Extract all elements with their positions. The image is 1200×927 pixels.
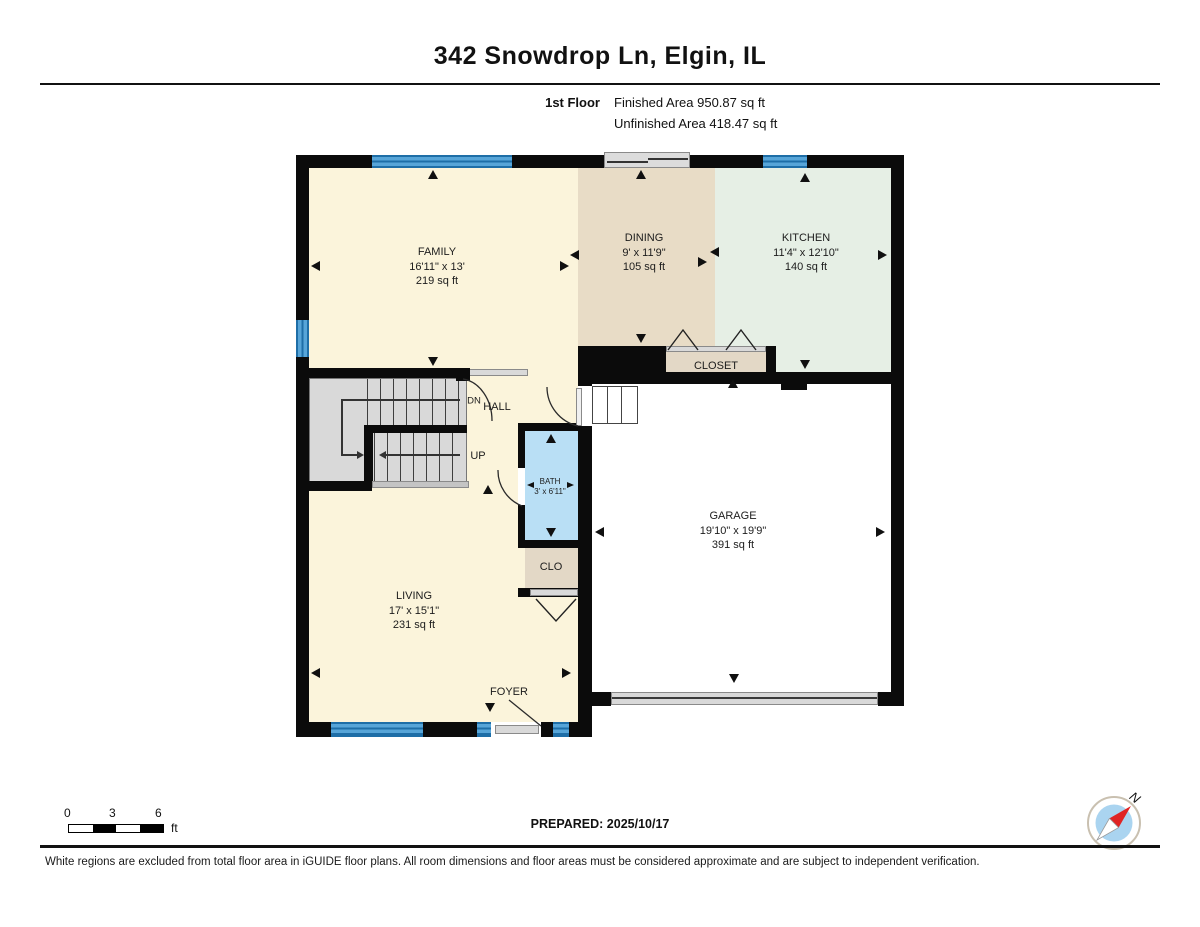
window-living-bottom-small-1	[477, 722, 491, 737]
room-name: KITCHEN	[773, 231, 839, 246]
window-kitchen-top	[763, 155, 807, 168]
wall-garage-bottom-left-cap	[578, 692, 611, 706]
stairs-up-label: UP	[470, 450, 485, 462]
dimension-arrow-down	[485, 703, 495, 712]
stairs-down-label: DN	[467, 396, 481, 407]
room-label-clo: CLO	[540, 561, 563, 573]
stair-path-line	[386, 454, 460, 456]
garage-entry-door-arc	[546, 384, 580, 428]
dimension-arrow-left	[527, 482, 534, 488]
garage-step-line	[607, 387, 608, 423]
room-dimensions: 19'10" x 19'9"	[700, 524, 766, 539]
room-dimensions: 3' x 6'11"	[534, 487, 566, 497]
wall-garage-top	[578, 372, 904, 384]
finished-area-text: Finished Area 950.87 sq ft	[614, 95, 765, 110]
room-area: 105 sq ft	[622, 260, 665, 275]
title-divider	[40, 83, 1160, 85]
floor-label: 1st Floor	[480, 95, 600, 110]
dimension-arrow-left	[710, 247, 719, 257]
sliding-door-dining	[604, 152, 690, 168]
dimension-arrow-right	[698, 257, 707, 267]
dimension-arrow-right	[878, 250, 887, 260]
dimension-arrow-down	[729, 674, 739, 683]
prepared-date: PREPARED: 2025/10/17	[0, 817, 1200, 831]
wall-outer-left	[296, 155, 309, 737]
dimension-arrow-down	[800, 360, 810, 369]
dimension-arrow-up	[483, 485, 493, 494]
room-label-living: LIVING 17' x 15'1" 231 sq ft	[389, 589, 439, 633]
unfinished-area-text: Unfinished Area 418.47 sq ft	[614, 116, 777, 131]
dimension-arrow-up	[728, 379, 738, 388]
stair-path-line	[341, 399, 343, 455]
room-dimensions: 17' x 15'1"	[389, 604, 439, 619]
window-living-bottom-large	[331, 722, 423, 737]
clo-bifold-door	[534, 597, 578, 623]
stair-divider-wall	[364, 425, 467, 433]
stair-path-arrow-right	[357, 451, 364, 459]
window-family-left	[296, 320, 309, 357]
window-family-top	[372, 155, 512, 168]
wall-outer-right	[891, 155, 904, 706]
dimension-arrow-down	[546, 528, 556, 537]
hall-threshold	[467, 369, 528, 376]
dimension-arrow-up	[636, 170, 646, 179]
room-area: 391 sq ft	[700, 538, 766, 553]
room-label-family: FAMILY 16'11" x 13' 219 sq ft	[409, 245, 465, 289]
footer-divider	[40, 845, 1160, 848]
dimension-arrow-right	[560, 261, 569, 271]
dimension-arrow-up	[800, 173, 810, 182]
page-title: 342 Snowdrop Ln, Elgin, IL	[0, 42, 1200, 71]
room-label-hall: HALL	[483, 401, 511, 413]
room-dimensions: 9' x 11'9"	[622, 246, 665, 261]
room-label-foyer: FOYER	[490, 686, 528, 698]
stair-threshold	[372, 481, 469, 488]
sliding-door-panel-line	[648, 158, 688, 160]
room-label-dining: DINING 9' x 11'9" 105 sq ft	[622, 231, 665, 275]
dimension-arrow-up	[428, 170, 438, 179]
stair-path-line	[341, 454, 357, 456]
sliding-door-panel-line	[607, 161, 648, 163]
room-name: GARAGE	[700, 509, 766, 524]
room-area: 140 sq ft	[773, 260, 839, 275]
compass-icon: N	[1084, 786, 1150, 854]
stair-treads-down	[367, 379, 461, 425]
stair-side-wall	[364, 425, 373, 481]
dimension-arrow-down	[636, 334, 646, 343]
room-dimensions: 16'11" x 13'	[409, 260, 465, 275]
wall-bath-clo-divider	[518, 540, 592, 548]
wall-living-garage-upper	[578, 348, 592, 386]
room-label-bath: BATH 3' x 6'11"	[534, 477, 566, 497]
garage-step-line	[621, 387, 622, 423]
wall-living-garage-lower	[578, 426, 592, 722]
room-area: 231 sq ft	[389, 618, 439, 633]
room-name: DINING	[622, 231, 665, 246]
garage-door	[611, 692, 878, 705]
room-label-kitchen: KITCHEN 11'4" x 12'10" 140 sq ft	[773, 231, 839, 275]
room-name: FAMILY	[409, 245, 465, 260]
dimension-arrow-right	[567, 482, 574, 488]
dimension-arrow-down	[428, 357, 438, 366]
bath-door-arc	[496, 466, 526, 510]
dimension-arrow-left	[570, 250, 579, 260]
wall-bath-left-upper	[518, 423, 525, 468]
wall-garage-bottom-right-cap	[878, 692, 904, 706]
wall-family-bottom	[296, 368, 467, 378]
dimension-arrow-up	[546, 434, 556, 443]
room-label-garage: GARAGE 19'10" x 19'9" 391 sq ft	[700, 509, 766, 553]
room-name: BATH	[534, 477, 566, 487]
wall-kitchen-stub	[781, 372, 807, 390]
stair-path-line	[341, 399, 460, 401]
room-name: LIVING	[389, 589, 439, 604]
stair-treads-up	[374, 433, 461, 481]
floorplan-page: 342 Snowdrop Ln, Elgin, IL 1st Floor Fin…	[0, 0, 1200, 927]
room-dimensions: 11'4" x 12'10"	[773, 246, 839, 261]
room-label-closet: CLOSET	[694, 360, 738, 372]
foyer-leader-line	[505, 696, 545, 730]
disclaimer-text: White regions are excluded from total fl…	[45, 856, 1160, 868]
dimension-arrow-left	[311, 261, 320, 271]
dimension-arrow-left	[595, 527, 604, 537]
closet-bifold-doors	[666, 326, 766, 352]
garage-door-line	[612, 697, 877, 699]
garage-steps	[592, 386, 638, 424]
room-area: 219 sq ft	[409, 274, 465, 289]
stair-path-arrow-left	[379, 451, 386, 459]
clo-threshold	[530, 589, 578, 596]
dimension-arrow-left	[311, 668, 320, 678]
dimension-arrow-right	[562, 668, 571, 678]
window-living-bottom-small-2	[553, 722, 569, 737]
dimension-arrow-right	[876, 527, 885, 537]
